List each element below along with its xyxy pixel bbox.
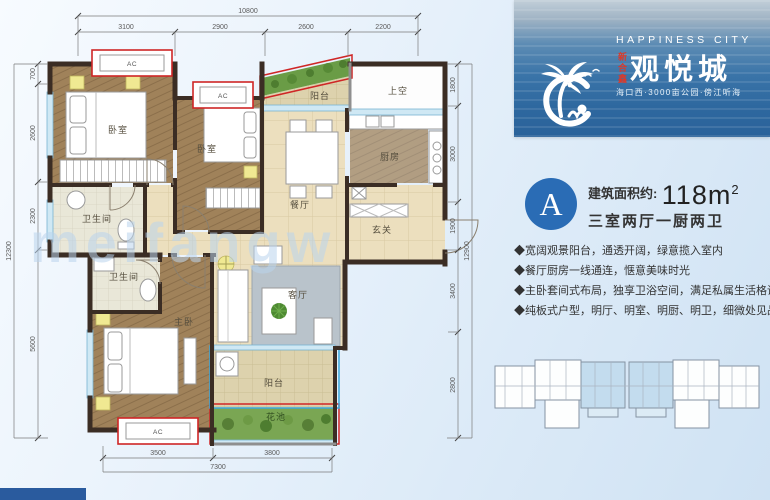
brand-chinese-name: 观悦城 (630, 46, 732, 88)
svg-text:2300: 2300 (30, 208, 37, 224)
feature-list: ◆宽阔观景阳台，通透开阔，绿意揽入室内 ◆餐厅厨房一线通连，惬意美味时光 ◆主卧… (514, 241, 768, 321)
wardrobe-icon (60, 160, 166, 182)
svg-text:1800: 1800 (450, 77, 457, 93)
svg-text:10800: 10800 (238, 8, 258, 15)
area-value: 118m2 (662, 180, 740, 210)
room-label-void: 上空 (388, 85, 408, 96)
building-key-plan (492, 346, 764, 451)
floor-plan-drawing: AC AC AC 卧室 卧室 阳台 上空 厨房 餐厅 玄关 卫生间 (0, 0, 510, 500)
flower-bed (210, 404, 339, 445)
unit-type-badge: A (525, 178, 577, 230)
ac-label: AC (127, 61, 137, 68)
svg-text:3800: 3800 (264, 450, 280, 457)
room-label-foyer: 玄关 (372, 224, 392, 235)
room-label-balcony-bottom: 阳台 (264, 377, 284, 388)
ac-label: AC (218, 93, 228, 100)
room-label-kitchen: 厨房 (380, 151, 400, 162)
svg-text:2900: 2900 (212, 24, 228, 31)
svg-text:2600: 2600 (298, 24, 314, 31)
room-label-bedroom1: 卧室 (108, 124, 128, 135)
feature-item: ◆宽阔观景阳台，通透开阔，绿意揽入室内 (514, 241, 768, 261)
svg-text:3000: 3000 (450, 146, 457, 162)
svg-text:3100: 3100 (118, 24, 134, 31)
brand-tagline: 海口西·3000亩公园·傍江听海 (616, 87, 742, 98)
area-line: 建筑面积约: 118m2 (588, 180, 740, 211)
svg-text:1900: 1900 (450, 218, 457, 234)
brand-english-name: HAPPINESS CITY (616, 34, 752, 46)
room-label-flowerbed: 花池 (266, 411, 286, 422)
palm-tree-logo-icon (522, 54, 612, 134)
svg-text:700: 700 (30, 68, 37, 80)
room-label-bath2: 卫生间 (109, 271, 139, 282)
feature-item: ◆餐厅厨房一线通连，惬意美味时光 (514, 261, 768, 281)
wardrobe2-icon (206, 188, 260, 208)
room-label-bath1: 卫生间 (82, 213, 112, 224)
svg-text:12300: 12300 (6, 241, 13, 261)
svg-text:2200: 2200 (375, 24, 391, 31)
svg-text:2600: 2600 (30, 125, 37, 141)
room-label-bedroom2: 卧室 (197, 143, 217, 154)
area-label: 建筑面积约: (588, 186, 657, 201)
brand-card: HAPPINESS CITY 新合鑫 观悦城 海口西·3000亩公园·傍江听海 (514, 0, 770, 137)
svg-text:5600: 5600 (30, 336, 37, 352)
feature-item: ◆纯板式户型，明厅、明室、明厨、明卫，细微处见品质 (514, 301, 768, 321)
ac-label: AC (153, 429, 163, 436)
room-label-balcony-top: 阳台 (310, 90, 330, 101)
svg-text:12900: 12900 (464, 241, 471, 261)
feature-item: ◆主卧套间式布局，独享卫浴空间，满足私属生活格调 (514, 281, 768, 301)
floorplan-flyer: AC AC AC 卧室 卧室 阳台 上空 厨房 餐厅 玄关 卫生间 (0, 0, 770, 500)
washer-icon (216, 352, 238, 376)
room-label-living: 客厅 (288, 289, 308, 300)
corner-strip (0, 488, 86, 500)
svg-text:3500: 3500 (150, 450, 166, 457)
svg-text:2800: 2800 (450, 377, 457, 393)
rooms-summary: 三室两厅一厨两卫 (588, 210, 724, 231)
svg-text:7300: 7300 (210, 464, 226, 471)
room-label-master: 主卧 (174, 316, 194, 327)
room-label-dining: 餐厅 (290, 199, 310, 210)
brand-developer-tag: 新合鑫 (616, 52, 629, 85)
svg-text:3400: 3400 (450, 283, 457, 299)
